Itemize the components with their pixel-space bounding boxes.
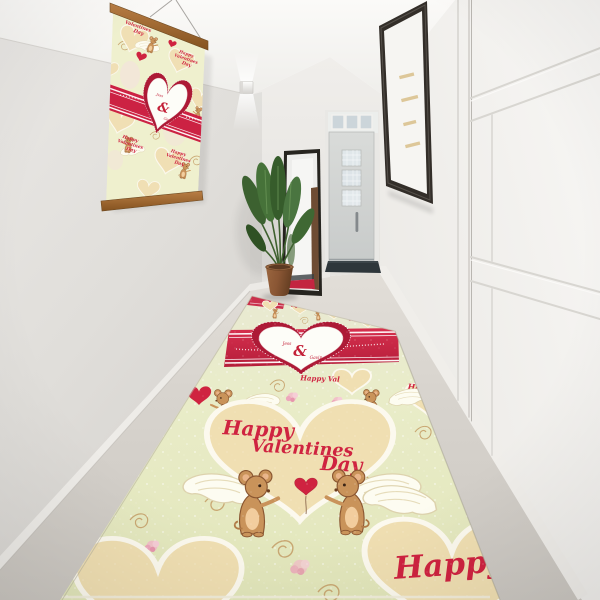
hallway-photo: Happy Valentines Day [0,0,600,600]
photo-vignette [0,0,600,600]
hallway-scene-svg: Happy Valentines Day [0,0,600,600]
